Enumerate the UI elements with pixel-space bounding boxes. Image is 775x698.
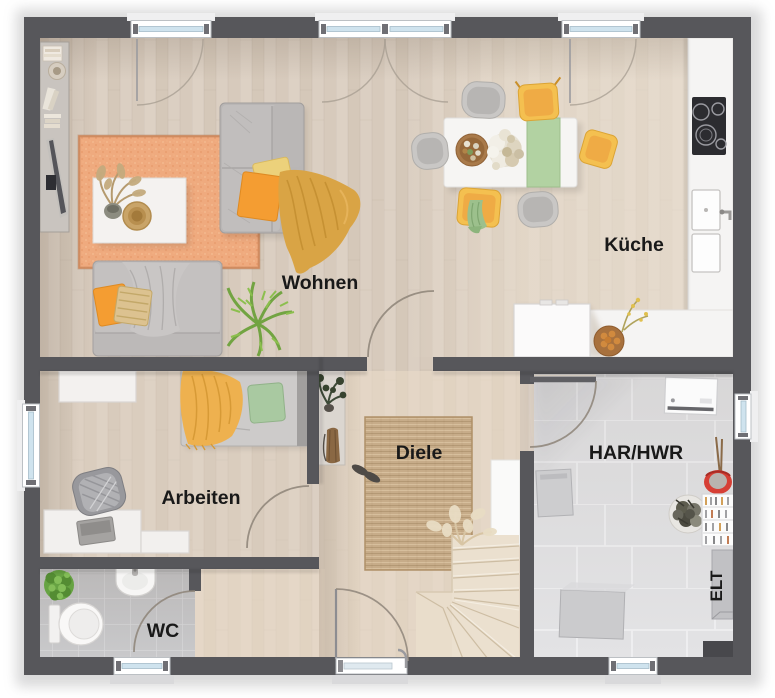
svg-text:WC: WC [147, 620, 180, 642]
svg-text:Wohnen: Wohnen [282, 272, 359, 294]
svg-text:HAR/HWR: HAR/HWR [589, 442, 683, 464]
svg-text:Diele: Diele [396, 442, 443, 464]
svg-text:ELT: ELT [707, 570, 726, 601]
svg-text:Küche: Küche [604, 234, 664, 256]
svg-text:Arbeiten: Arbeiten [161, 487, 240, 509]
